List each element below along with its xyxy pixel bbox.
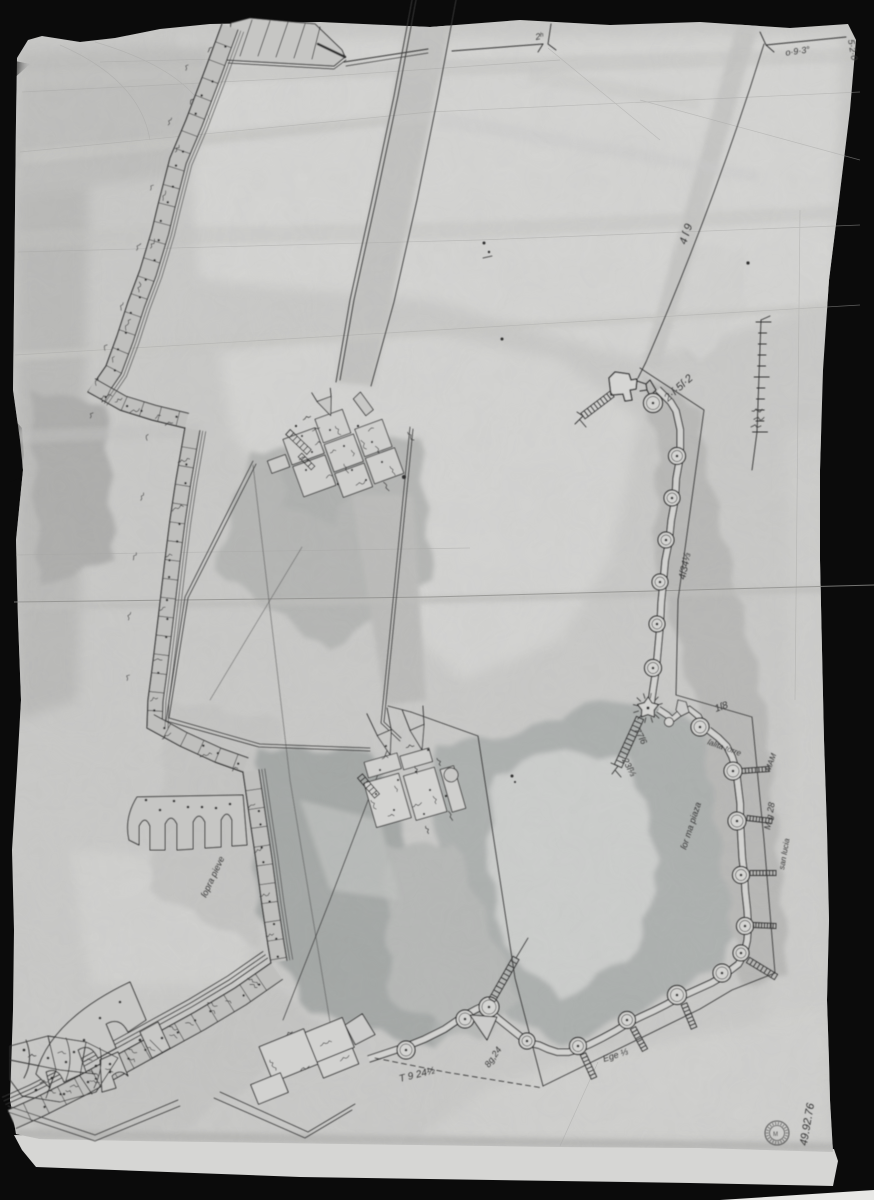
svg-text:M: M	[773, 1132, 778, 1138]
